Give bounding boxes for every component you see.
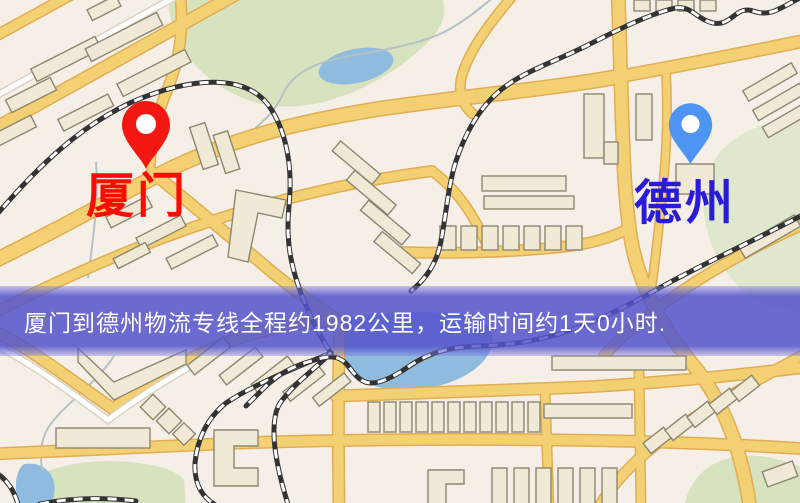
blue-map-pin-icon[interactable] [667, 100, 714, 168]
red-map-pin-icon[interactable] [120, 100, 172, 170]
route-info-text: 厦门到德州物流专线全程约1982公里，运输时间约1天0小时. [0, 304, 666, 338]
origin-label: 厦门 [86, 173, 188, 221]
route-info-banner: 厦门到德州物流专线全程约1982公里，运输时间约1天0小时. [0, 286, 800, 356]
logistics-route-map: 厦门到德州物流专线全程约1982公里，运输时间约1天0小时. 厦门 德州 [0, 0, 800, 503]
map-canvas [0, 0, 800, 503]
destination-label: 德州 [634, 180, 736, 228]
